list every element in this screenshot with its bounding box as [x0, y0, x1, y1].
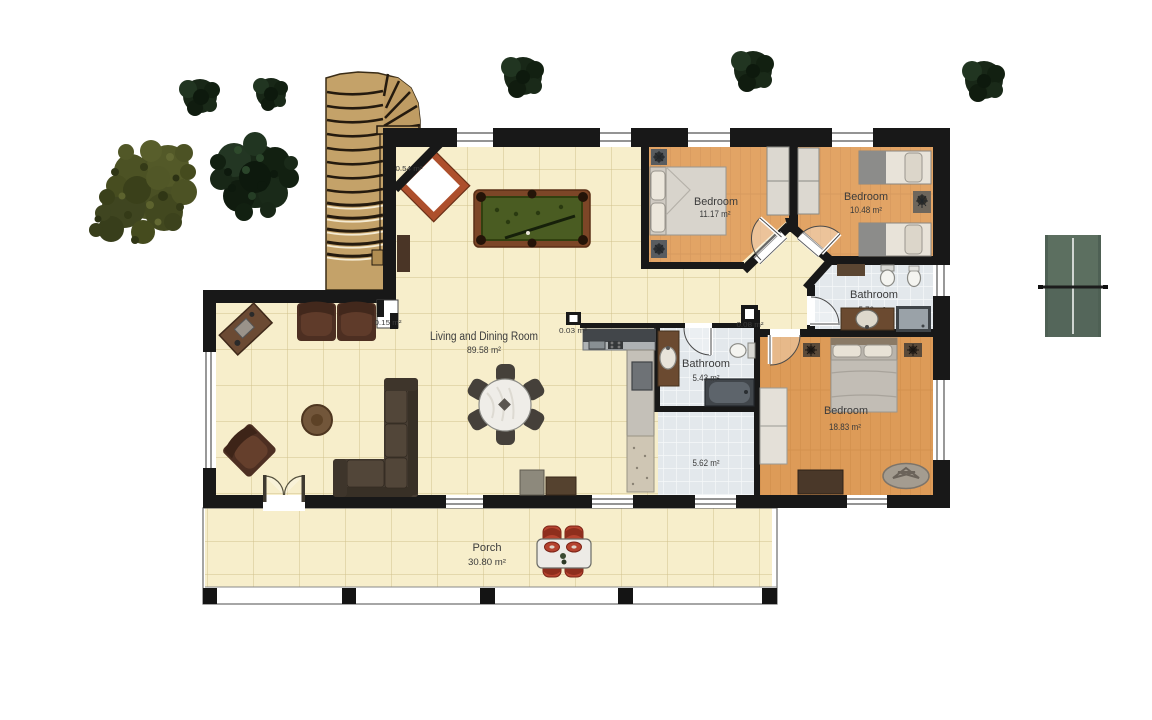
svg-text:Porch: Porch — [473, 542, 502, 554]
svg-text:0.03 m²: 0.03 m² — [559, 326, 588, 335]
svg-text:Bathroom: Bathroom — [850, 289, 898, 301]
svg-text:10.48 m²: 10.48 m² — [850, 205, 882, 215]
svg-text:0.08 m²: 0.08 m² — [737, 320, 765, 329]
svg-text:Living and Dining Room: Living and Dining Room — [430, 331, 538, 343]
svg-text:Bedroom: Bedroom — [844, 191, 888, 203]
svg-text:30.80 m²: 30.80 m² — [468, 557, 506, 567]
svg-text:Bathroom: Bathroom — [682, 358, 730, 370]
svg-text:0.15 m²: 0.15 m² — [375, 318, 403, 327]
svg-text:11.17 m²: 11.17 m² — [700, 209, 731, 219]
svg-text:Bedroom: Bedroom — [694, 196, 738, 208]
svg-text:89.58 m²: 89.58 m² — [467, 345, 501, 356]
svg-text:Bedroom: Bedroom — [824, 405, 868, 417]
svg-text:0.54 m²: 0.54 m² — [396, 164, 424, 173]
svg-text:5.43 m²: 5.43 m² — [693, 373, 720, 383]
svg-text:18.83 m²: 18.83 m² — [829, 422, 861, 432]
svg-text:5.62 m²: 5.62 m² — [693, 458, 720, 468]
